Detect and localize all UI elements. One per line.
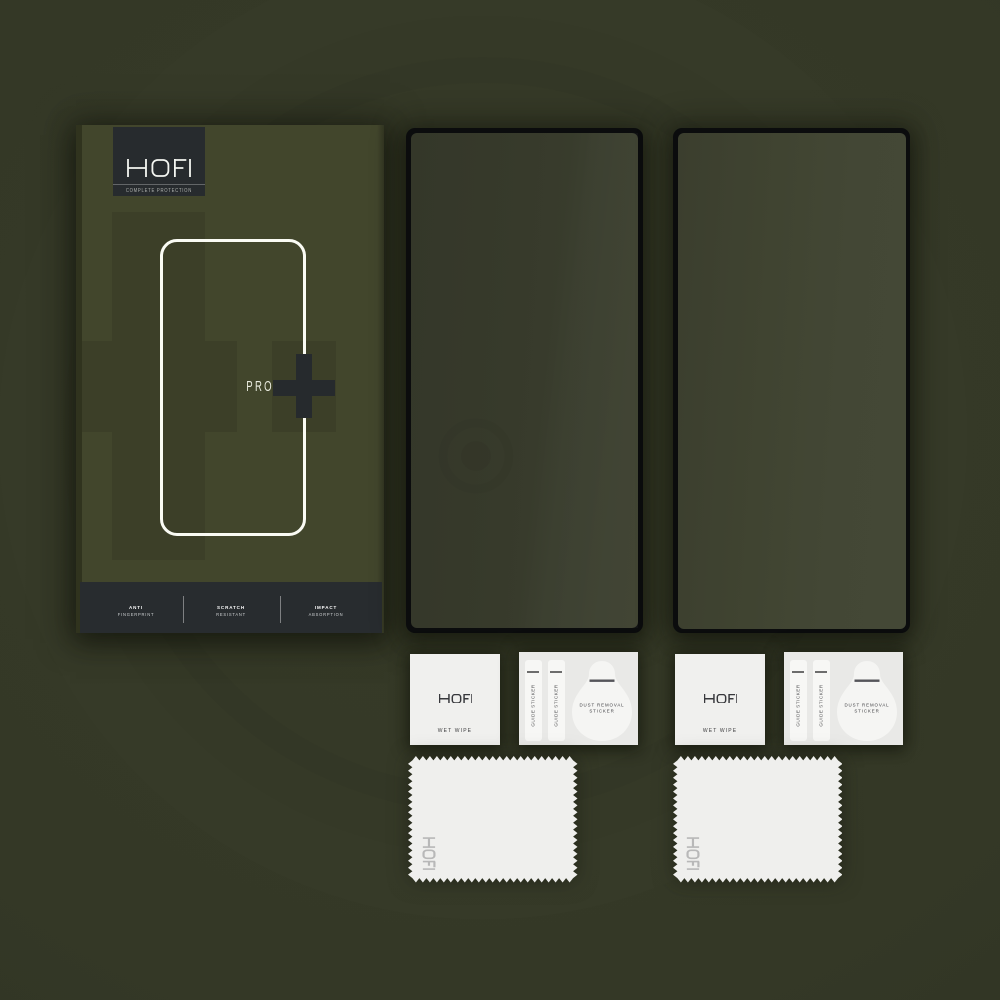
svg-text:DUST REMOVAL: DUST REMOVAL [844,703,889,708]
svg-text:STICKER: STICKER [854,709,879,714]
svg-text:STICKER: STICKER [589,709,614,714]
svg-text:DUST REMOVAL: DUST REMOVAL [579,703,624,708]
